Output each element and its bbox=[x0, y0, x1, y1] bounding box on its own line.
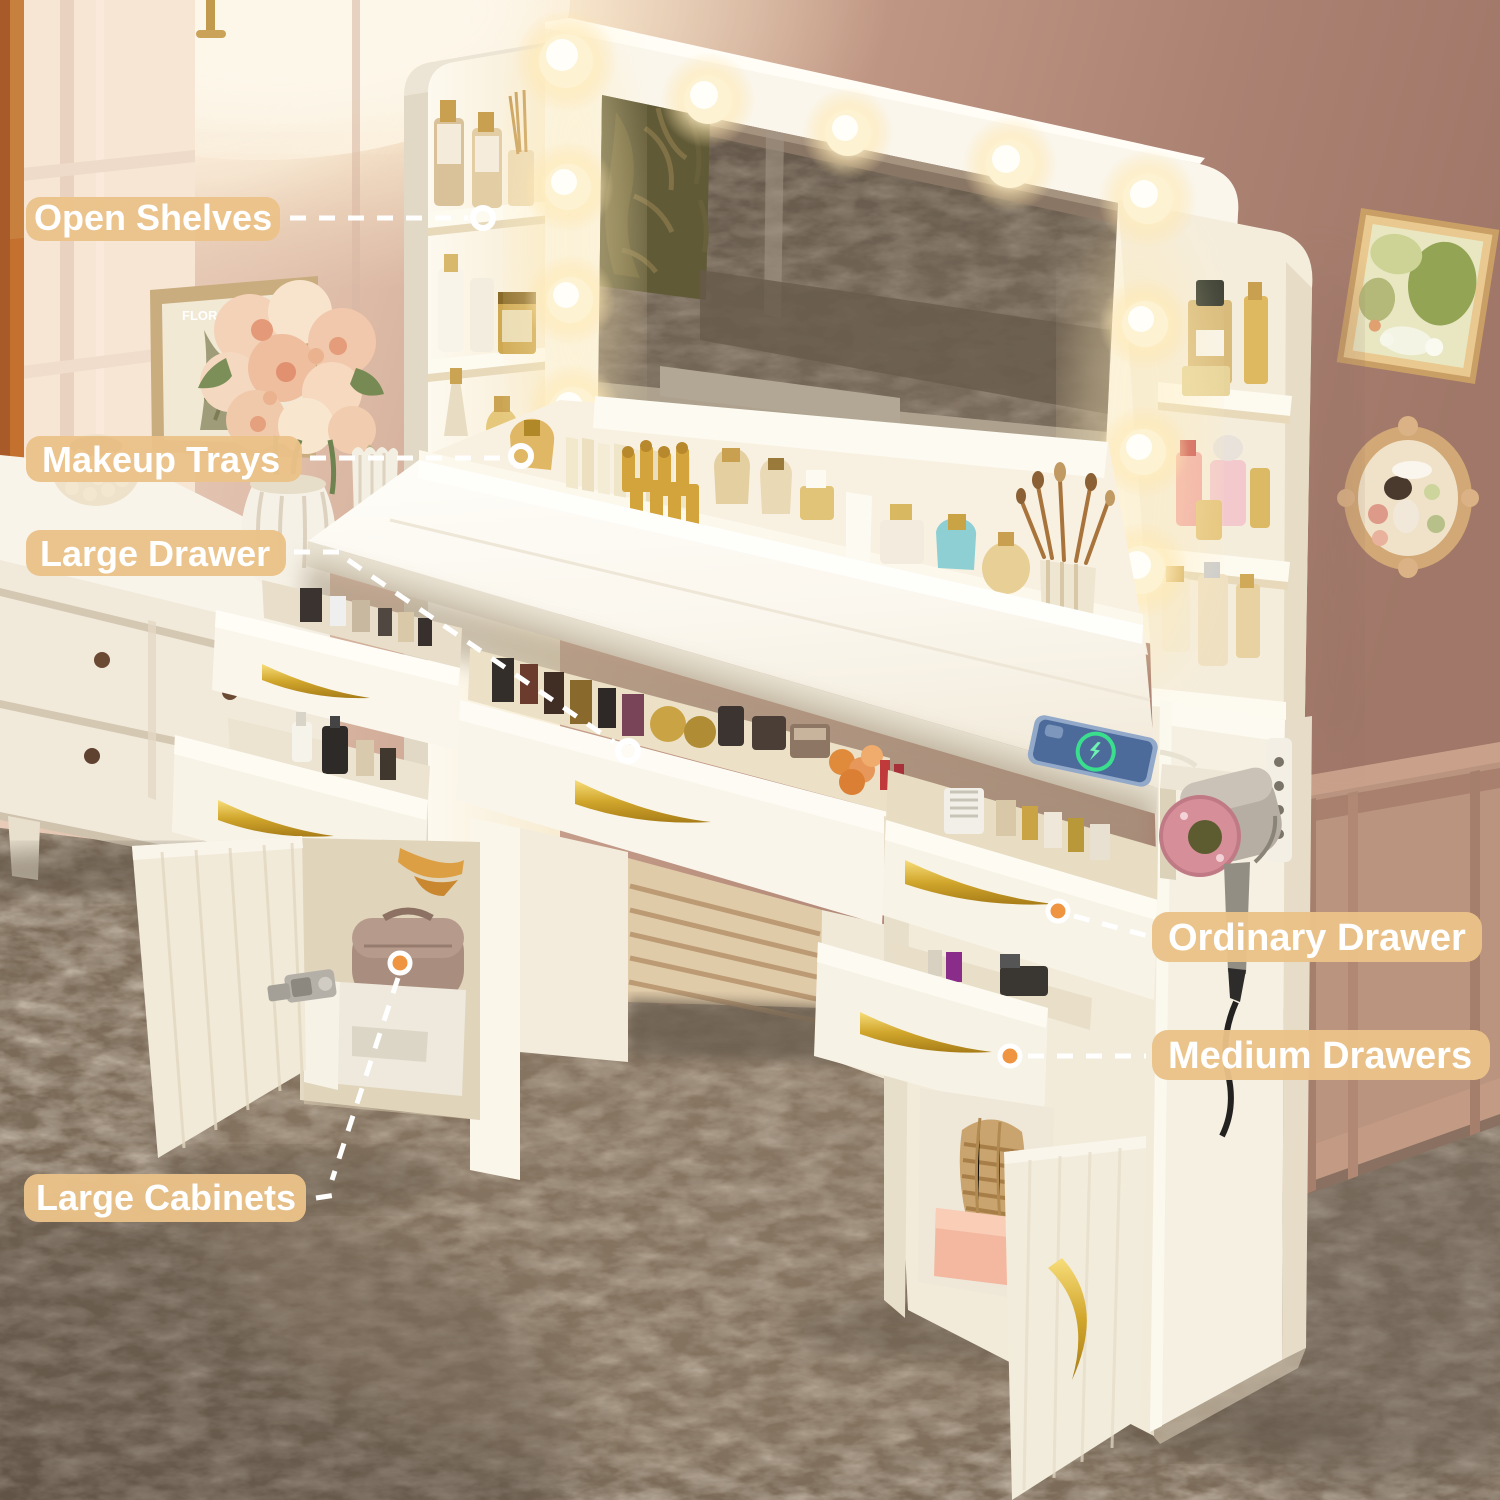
svg-text:Large Drawer: Large Drawer bbox=[40, 533, 270, 574]
svg-text:Makeup Trays: Makeup Trays bbox=[42, 439, 280, 480]
svg-text:Medium Drawers: Medium Drawers bbox=[1168, 1035, 1472, 1077]
svg-text:Large Cabinets: Large Cabinets bbox=[36, 1177, 296, 1218]
svg-text:Open Shelves: Open Shelves bbox=[34, 197, 272, 238]
svg-text:Ordinary Drawer: Ordinary Drawer bbox=[1168, 917, 1466, 959]
